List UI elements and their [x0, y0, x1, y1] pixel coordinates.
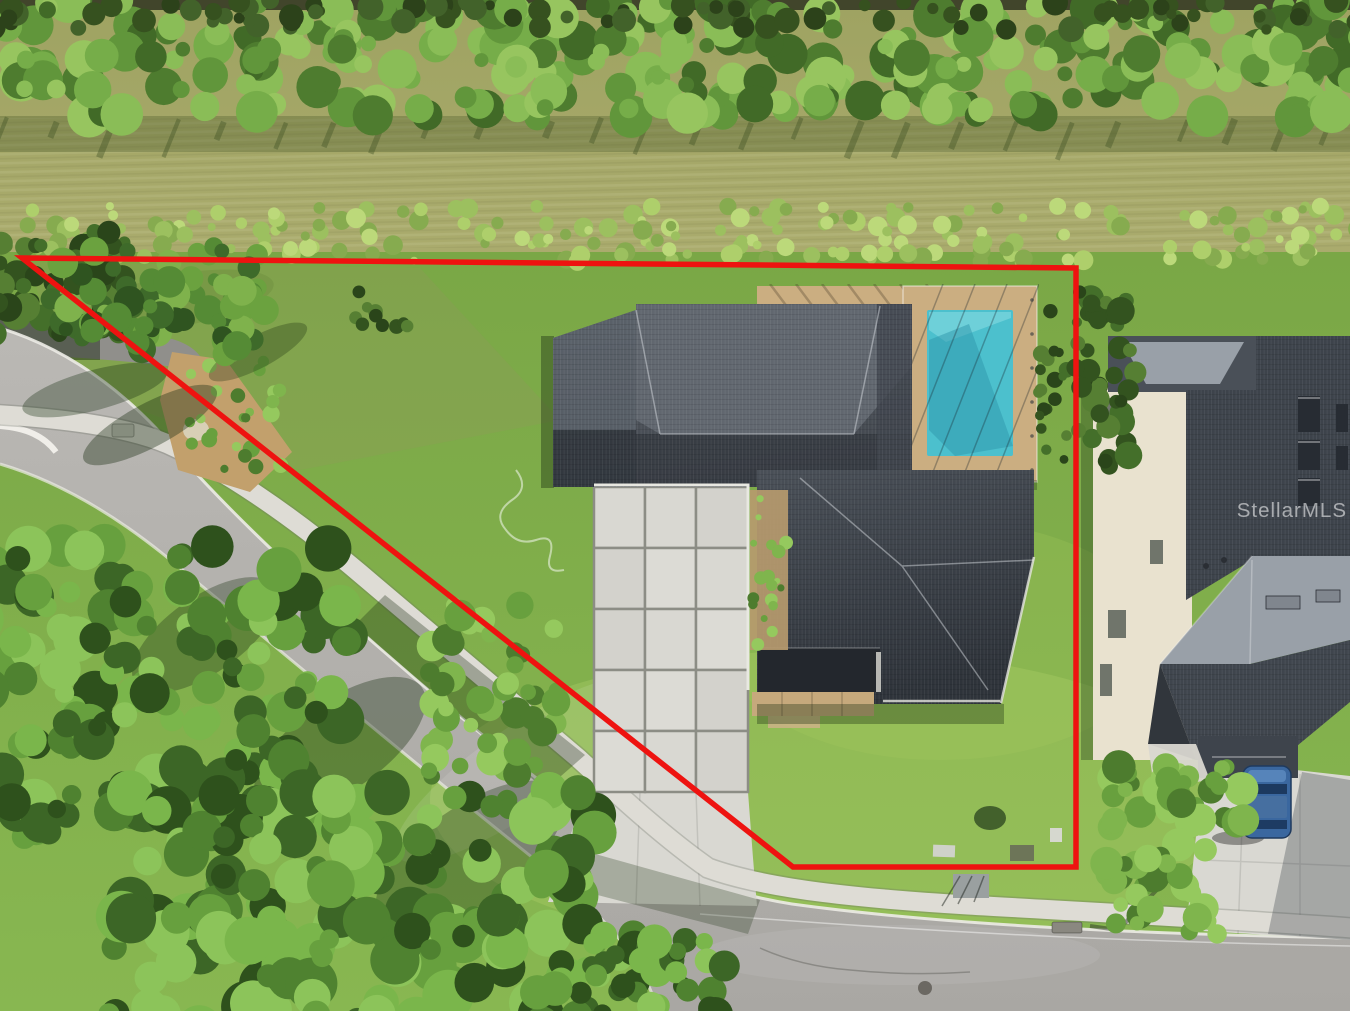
foliage-blob — [1288, 103, 1312, 127]
foliage-blob — [1290, 8, 1307, 25]
foliage-blob — [236, 218, 247, 229]
foliage-blob — [1253, 11, 1265, 23]
foliage-blob — [922, 94, 953, 125]
foliage-blob — [458, 199, 478, 219]
foliage-blob — [159, 745, 203, 789]
foliage-blob — [529, 873, 554, 898]
foliage-blob — [420, 939, 441, 960]
foliage-blob — [1062, 88, 1082, 108]
foliage-blob — [671, 231, 680, 240]
foliage-blob — [469, 839, 492, 862]
foliage-blob — [1074, 202, 1091, 219]
foliage-blob — [1049, 346, 1060, 357]
foliage-blob — [142, 796, 172, 826]
foliage-blob — [205, 3, 222, 20]
foliage-blob — [676, 979, 699, 1002]
foliage-blob — [238, 449, 252, 463]
foliage-blob — [1183, 903, 1212, 932]
foliage-blob — [361, 36, 376, 51]
foliage-blob — [16, 278, 32, 294]
foliage-blob — [1033, 345, 1050, 362]
foliage-blob — [353, 286, 366, 299]
foliage-blob — [699, 38, 714, 53]
foliage-blob — [17, 51, 35, 69]
foliage-blob — [319, 585, 361, 627]
foliage-blob — [466, 686, 494, 714]
foliage-blob — [1058, 16, 1084, 42]
foliage-blob — [452, 925, 475, 948]
foliage-blob — [662, 242, 676, 256]
foliage-blob — [543, 234, 553, 244]
driveway-paver-panel — [594, 609, 645, 670]
foliage-blob — [1189, 210, 1207, 228]
driveway-paver-panel — [645, 609, 696, 670]
foliage-blob — [1225, 772, 1259, 806]
foliage-blob — [506, 656, 523, 673]
foliage-blob — [1010, 91, 1038, 119]
foliage-blob — [180, 0, 202, 21]
foliage-blob — [619, 99, 638, 118]
foliage-blob — [956, 57, 971, 72]
foliage-blob — [1060, 455, 1069, 464]
foliage-blob — [1113, 897, 1128, 912]
foliage-blob — [1089, 311, 1107, 329]
foliage-blob — [761, 615, 768, 622]
foliage-blob — [539, 216, 553, 230]
foliage-blob — [477, 894, 520, 937]
foliage-blob — [1061, 430, 1072, 441]
foliage-blob — [1041, 445, 1051, 455]
foliage-blob — [406, 851, 439, 884]
foliage-blob — [804, 7, 827, 30]
foliage-blob — [477, 733, 497, 753]
foliage-blob — [0, 626, 31, 658]
foliage-blob — [70, 20, 86, 36]
foliage-blob — [137, 616, 157, 636]
foliage-blob — [177, 226, 193, 242]
foliage-blob — [5, 546, 30, 571]
foliage-blob — [1049, 198, 1066, 215]
foliage-blob — [106, 202, 114, 210]
foliage-blob — [1249, 239, 1265, 255]
foliage-blob — [401, 320, 413, 332]
foliage-blob — [1155, 767, 1181, 793]
foliage-blob — [65, 531, 105, 571]
foliage-blob — [220, 465, 228, 473]
foliage-blob — [199, 775, 240, 816]
foliage-blob — [843, 210, 858, 225]
foliage-blob — [823, 19, 842, 38]
foliage-blob — [88, 718, 106, 736]
foliage-blob — [899, 244, 917, 262]
foliage-blob — [999, 242, 1014, 257]
foliage-blob — [724, 244, 742, 262]
foliage-blob — [48, 248, 79, 279]
foliage-blob — [1281, 207, 1299, 225]
foliage-blob — [947, 235, 959, 247]
foliage-blob — [313, 219, 326, 232]
foliage-blob — [190, 92, 219, 121]
foliage-blob — [464, 718, 479, 733]
foliage-blob — [62, 785, 81, 804]
foliage-blob — [133, 847, 162, 876]
foliage-blob — [777, 584, 784, 591]
foliage-blob — [106, 893, 156, 943]
foliage-blob — [903, 202, 913, 212]
foliage-blob — [674, 16, 693, 35]
foliage-blob — [1248, 217, 1268, 237]
foliage-blob — [587, 237, 600, 250]
foliage-blob — [803, 247, 820, 264]
foliage-blob — [768, 601, 778, 611]
driveway-paver-panel — [594, 548, 645, 609]
foliage-blob — [353, 95, 393, 135]
foliage-blob — [48, 800, 66, 818]
foliage-blob — [173, 81, 190, 98]
foliage-blob — [438, 701, 453, 716]
foliage-blob — [933, 216, 951, 234]
driveway-grid — [594, 487, 748, 792]
foliage-blob — [733, 17, 754, 38]
foliage-blob — [478, 101, 492, 115]
foliage-blob — [64, 217, 79, 232]
foliage-blob — [167, 545, 191, 569]
foliage-blob — [505, 56, 527, 78]
foliage-blob — [1269, 33, 1302, 66]
foliage-blob — [1187, 95, 1229, 137]
foliage-blob — [1105, 367, 1122, 384]
foliage-blob — [1193, 241, 1212, 260]
foliage-blob — [1312, 198, 1329, 215]
foliage-blob — [633, 220, 652, 239]
foliage-blob — [308, 4, 323, 19]
foliage-blob — [156, 942, 197, 983]
foliage-blob — [1179, 210, 1190, 221]
foliage-blob — [1288, 72, 1314, 98]
driveway-paver-panel — [594, 670, 645, 731]
foliage-blob — [1257, 253, 1269, 265]
foliage-blob — [279, 4, 304, 29]
foliage-blob — [414, 203, 428, 217]
foliage-blob — [332, 627, 361, 656]
foliage-blob — [506, 592, 533, 619]
foliage-blob — [1104, 205, 1119, 220]
foliage-blob — [257, 964, 280, 987]
foliage-blob — [176, 42, 191, 57]
foliage-blob — [206, 428, 218, 440]
foliage-blob — [528, 717, 557, 746]
foliage-blob — [439, 630, 465, 656]
foliage-blob — [504, 739, 531, 766]
foliage-blob — [236, 714, 270, 748]
foliage-blob — [214, 244, 229, 259]
driveway-paver-panel — [696, 731, 748, 792]
foliage-blob — [236, 91, 278, 133]
foliage-blob — [1083, 295, 1101, 313]
foliage-blob — [651, 70, 665, 84]
foliage-blob — [82, 2, 105, 25]
foliage-blob — [1130, 916, 1144, 930]
aerial-property-photo: StellarMLS — [0, 0, 1350, 1011]
utility-plate — [1050, 828, 1062, 842]
foliage-blob — [1329, 20, 1347, 38]
foliage-blob — [1285, 240, 1299, 254]
foliage-blob — [15, 724, 47, 756]
foliage-blob — [643, 198, 660, 215]
foliage-blob — [376, 319, 389, 332]
foliage-blob — [1098, 454, 1113, 469]
foliage-blob — [474, 53, 488, 67]
foliage-blob — [973, 236, 991, 254]
storm-drain-inlet — [1052, 922, 1082, 933]
foliage-blob — [1167, 788, 1197, 818]
foliage-blob — [1210, 9, 1235, 34]
foliage-blob — [343, 897, 391, 945]
foliage-blob — [154, 266, 186, 298]
foliage-blob — [165, 570, 200, 605]
foliage-blob — [319, 71, 341, 93]
foliage-blob — [504, 9, 522, 27]
foliage-blob — [750, 540, 757, 547]
foliage-blob — [268, 207, 280, 219]
driveway-paver-panel — [645, 548, 696, 609]
foliage-blob — [637, 924, 672, 959]
foliage-blob — [1111, 217, 1130, 236]
driveway-paver-panel — [594, 487, 645, 548]
foliage-blob — [1048, 392, 1062, 406]
foliage-blob — [709, 951, 740, 982]
foliage-blob — [1165, 43, 1201, 79]
foliage-blob — [364, 770, 409, 815]
foliage-blob — [1315, 225, 1324, 234]
foliage-blob — [728, 1, 745, 18]
foliage-blob — [47, 614, 76, 643]
foliage-blob — [130, 673, 170, 713]
foliage-blob — [520, 684, 536, 700]
foliage-blob — [222, 331, 251, 360]
house-west-shadow — [541, 336, 554, 488]
foliage-blob — [26, 204, 39, 217]
foliage-blob — [39, 1, 56, 18]
foliage-blob — [1261, 24, 1271, 34]
foliage-blob — [804, 85, 835, 116]
foliage-blob — [1043, 304, 1057, 318]
foliage-blob — [20, 217, 36, 233]
foliage-blob — [989, 35, 1023, 69]
foliage-blob — [15, 574, 52, 611]
foliage-blob — [1299, 205, 1307, 213]
foliage-blob — [356, 318, 369, 331]
foliage-blob — [378, 49, 417, 88]
foliage-blob — [247, 642, 270, 665]
foliage-blob — [104, 645, 128, 669]
foliage-blob — [877, 246, 893, 262]
foliage-blob — [1094, 3, 1113, 22]
foliage-blob — [1091, 404, 1109, 422]
foliage-blob — [430, 672, 454, 696]
foliage-blob — [736, 86, 773, 123]
foliage-blob — [715, 225, 726, 236]
foliage-blob — [452, 758, 469, 775]
foliage-blob — [818, 202, 829, 213]
foliage-blob — [898, 215, 917, 234]
foliage-blob — [238, 869, 270, 901]
foliage-blob — [257, 547, 302, 592]
foliage-blob — [748, 600, 758, 610]
foliage-blob — [55, 684, 74, 703]
foliage-blob — [996, 19, 1016, 39]
foliage-blob — [132, 9, 156, 33]
foliage-blob — [16, 81, 33, 98]
foliage-blob — [273, 384, 286, 397]
utility-pad — [933, 845, 955, 858]
foliage-blob — [1090, 847, 1122, 879]
foliage-blob — [1134, 845, 1162, 873]
foliage-blob — [1300, 244, 1316, 260]
foliage-blob — [455, 963, 495, 1003]
foliage-blob — [1330, 228, 1342, 240]
foliage-blob — [331, 243, 347, 259]
foliage-blob — [40, 649, 81, 690]
foliage-blob — [1218, 206, 1237, 225]
foliage-blob — [143, 299, 157, 313]
foliage-blob — [249, 832, 281, 864]
foliage-blob — [312, 946, 333, 967]
foliage-blob — [509, 797, 557, 845]
foliage-blob — [135, 316, 154, 335]
driveway-paver-panel — [696, 670, 748, 731]
foliage-blob — [1102, 750, 1136, 784]
foliage-blob — [59, 322, 73, 336]
foliage-blob — [361, 229, 377, 245]
foliage-blob — [1035, 364, 1046, 375]
foliage-blob — [537, 99, 554, 116]
foliage-blob — [301, 231, 310, 240]
foliage-blob — [225, 749, 247, 771]
foliage-blob — [1187, 9, 1200, 22]
foliage-blob — [491, 217, 503, 229]
foliage-blob — [777, 238, 795, 256]
foliage-blob — [1223, 225, 1234, 236]
foliage-blob — [314, 202, 326, 214]
foliage-blob — [110, 586, 142, 618]
foliage-blob — [1141, 82, 1179, 120]
foliage-blob — [545, 620, 563, 638]
foliage-blob — [328, 35, 357, 64]
foliage-blob — [992, 202, 1004, 214]
foliage-blob — [1058, 372, 1067, 381]
foliage-blob — [935, 57, 958, 80]
foliage-blob — [1034, 47, 1058, 71]
foliage-blob — [102, 303, 132, 333]
foliage-blob — [108, 210, 118, 220]
foliage-blob — [192, 57, 228, 93]
foliage-blob — [1123, 343, 1137, 357]
foliage-blob — [1058, 229, 1070, 241]
foliage-blob — [599, 218, 618, 237]
foliage-blob — [59, 582, 80, 603]
foliage-blob — [391, 9, 415, 33]
foliage-blob — [257, 906, 286, 935]
foliage-blob — [612, 8, 636, 32]
foliage-blob — [749, 206, 759, 216]
foliage-blob — [666, 221, 676, 231]
foliage-blob — [1210, 216, 1220, 226]
lawn-dark-spot — [974, 806, 1006, 830]
foliage-blob — [253, 222, 270, 239]
driveway-paver-panel — [696, 487, 748, 548]
driveway-paver-panel — [696, 548, 748, 609]
foliage-blob — [1228, 804, 1260, 836]
foliage-blob — [667, 92, 708, 133]
foliage-blob — [403, 823, 436, 856]
driveway-paver-panel — [645, 487, 696, 548]
foliage-blob — [158, 13, 186, 41]
foliage-blob — [241, 413, 250, 422]
foliage-blob — [780, 203, 793, 216]
foliage-blob — [530, 200, 543, 213]
foliage-blob — [1035, 411, 1044, 420]
foliage-blob — [427, 26, 457, 56]
foliage-blob — [1234, 227, 1250, 243]
porch-column — [876, 652, 881, 692]
foliage-blob — [755, 514, 761, 520]
foliage-blob — [299, 239, 317, 257]
foliage-blob — [976, 227, 987, 238]
foliage-blob — [101, 93, 144, 136]
foliage-blob — [186, 369, 196, 379]
foliage-blob — [881, 91, 910, 120]
foliage-blob — [1115, 395, 1128, 408]
foliage-blob — [584, 226, 593, 235]
entry-porch-shadow — [758, 648, 880, 692]
foliage-blob — [223, 657, 242, 676]
foliage-blob — [161, 902, 193, 934]
scene-canvas: StellarMLS — [0, 0, 1350, 1011]
foliage-blob — [882, 226, 892, 236]
foliage-blob — [187, 596, 226, 635]
foliage-blob — [943, 6, 960, 23]
driveway-paver-panel — [696, 609, 748, 670]
foliage-blob — [305, 525, 351, 571]
foliage-blob — [873, 10, 895, 32]
foliage-blob — [210, 205, 226, 221]
foliage-blob — [1118, 782, 1133, 797]
foliage-blob — [820, 216, 833, 229]
foliage-blob — [405, 94, 434, 123]
foliage-blob — [970, 4, 988, 22]
foliage-blob — [968, 97, 993, 122]
foliage-blob — [538, 971, 573, 1006]
foliage-blob — [1107, 297, 1135, 325]
foliage-blob — [305, 701, 328, 724]
foliage-blob — [1123, 35, 1160, 72]
foliage-blob — [593, 44, 610, 61]
foliage-blob — [736, 235, 747, 246]
foliage-blob — [320, 929, 339, 948]
foliage-blob — [257, 38, 281, 62]
foliage-blob — [561, 11, 574, 24]
foliage-blob — [614, 248, 628, 262]
foliage-blob — [312, 775, 355, 818]
foliage-blob — [1062, 253, 1075, 266]
foliage-blob — [1276, 235, 1284, 243]
foliage-blob — [697, 2, 710, 15]
foliage-blob — [249, 296, 278, 325]
foliage-blob — [1113, 4, 1132, 23]
foliage-blob — [455, 86, 477, 108]
foliage-blob — [606, 945, 625, 964]
